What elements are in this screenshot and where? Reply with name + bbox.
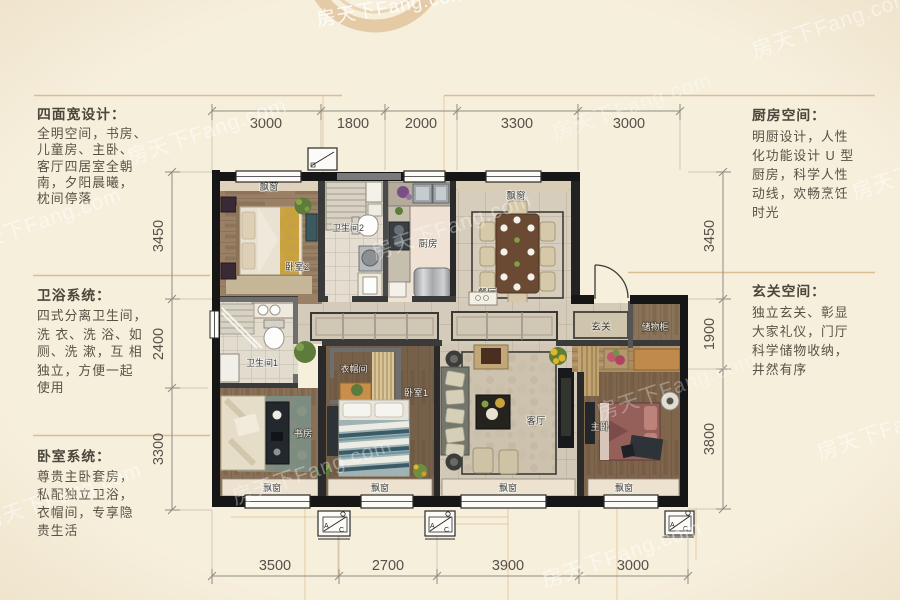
svg-text:3500: 3500 (259, 558, 291, 574)
svg-text:2700: 2700 (372, 558, 404, 574)
svg-text:3300: 3300 (501, 116, 533, 132)
svg-text:厕、洗 漱，互 相: 厕、洗 漱，互 相 (37, 344, 143, 359)
svg-text:飘窗: 飘窗 (371, 482, 389, 493)
svg-text:科学储物收纳，: 科学储物收纳， (752, 343, 849, 358)
svg-text:玄关空间：: 玄关空间： (752, 283, 826, 299)
svg-text:飘窗: 飘窗 (499, 482, 517, 493)
svg-text:3450: 3450 (702, 220, 718, 252)
svg-text:书房: 书房 (293, 428, 312, 440)
svg-text:全明空间，书房、: 全明空间，书房、 (37, 126, 147, 141)
svg-text:3800: 3800 (702, 423, 718, 455)
svg-text:卫生间2: 卫生间2 (332, 222, 364, 233)
svg-text:卧室系统：: 卧室系统： (37, 448, 111, 464)
svg-text:3450: 3450 (151, 220, 167, 252)
svg-text:使用: 使用 (37, 380, 65, 395)
svg-text:四面宽设计：: 四面宽设计： (37, 106, 126, 122)
svg-text:儿童房、主卧、: 儿童房、主卧、 (37, 142, 134, 157)
svg-text:南，夕阳晨曦，: 南，夕阳晨曦， (37, 175, 134, 190)
svg-text:飘窗: 飘窗 (615, 482, 633, 493)
svg-text:客厅: 客厅 (526, 415, 546, 427)
svg-text:3300: 3300 (151, 433, 167, 465)
svg-text:2400: 2400 (151, 328, 167, 360)
svg-text:厨房空间：: 厨房空间： (752, 107, 826, 123)
svg-text:贵生活: 贵生活 (37, 523, 78, 538)
svg-text:1800: 1800 (337, 116, 369, 132)
svg-text:1900: 1900 (702, 318, 718, 350)
svg-text:化功能设计 U 型: 化功能设计 U 型 (752, 148, 854, 163)
svg-text:A: A (430, 523, 435, 530)
svg-text:时光: 时光 (752, 205, 780, 220)
svg-text:卫浴系统：: 卫浴系统： (37, 287, 111, 303)
svg-text:C: C (444, 527, 449, 534)
svg-text:洗 衣、洗 浴、如: 洗 衣、洗 浴、如 (37, 327, 143, 342)
svg-text:独立，方便一起: 独立，方便一起 (37, 363, 134, 378)
svg-text:井然有序: 井然有序 (752, 362, 807, 377)
svg-text:四式分离卫生间，: 四式分离卫生间， (37, 308, 147, 323)
svg-text:客厅四居室全朝: 客厅四居室全朝 (37, 159, 134, 174)
svg-text:独立玄关、彰显: 独立玄关、彰显 (752, 305, 849, 320)
svg-text:飘窗: 飘窗 (259, 181, 278, 193)
svg-text:3900: 3900 (492, 558, 524, 574)
svg-text:储物柜: 储物柜 (641, 321, 668, 332)
svg-text:A: A (324, 523, 329, 530)
svg-text:卫生间1: 卫生间1 (246, 357, 278, 368)
svg-text:衣帽间: 衣帽间 (340, 363, 367, 374)
svg-text:厨房，科学人性: 厨房，科学人性 (752, 167, 849, 182)
svg-text:卧室1: 卧室1 (404, 387, 428, 399)
svg-text:大家礼仪，门厅: 大家礼仪，门厅 (752, 324, 849, 339)
svg-text:动线，欢畅烹饪: 动线，欢畅烹饪 (752, 186, 849, 201)
svg-text:C: C (339, 527, 344, 534)
svg-text:卧室2: 卧室2 (285, 261, 309, 273)
svg-text:明厨设计，人性: 明厨设计，人性 (752, 129, 849, 144)
svg-text:2000: 2000 (405, 116, 437, 132)
svg-text:玄关: 玄关 (591, 320, 611, 333)
